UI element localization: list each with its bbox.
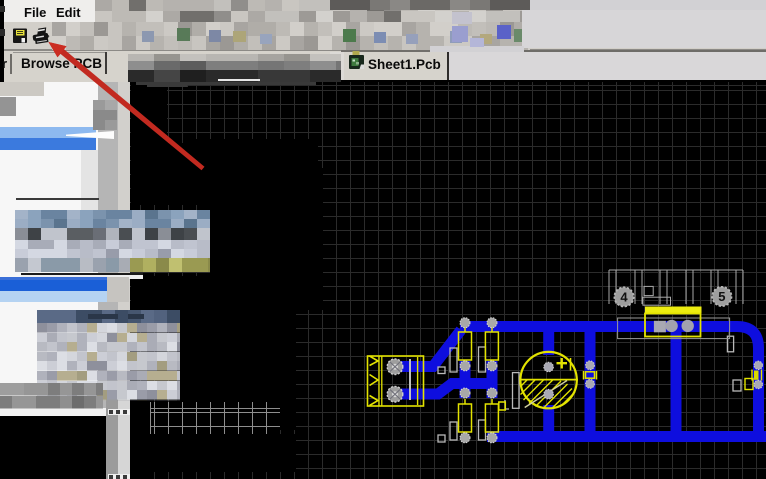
svg-text:4: 4 [620,290,628,305]
svg-text:5: 5 [718,289,725,304]
